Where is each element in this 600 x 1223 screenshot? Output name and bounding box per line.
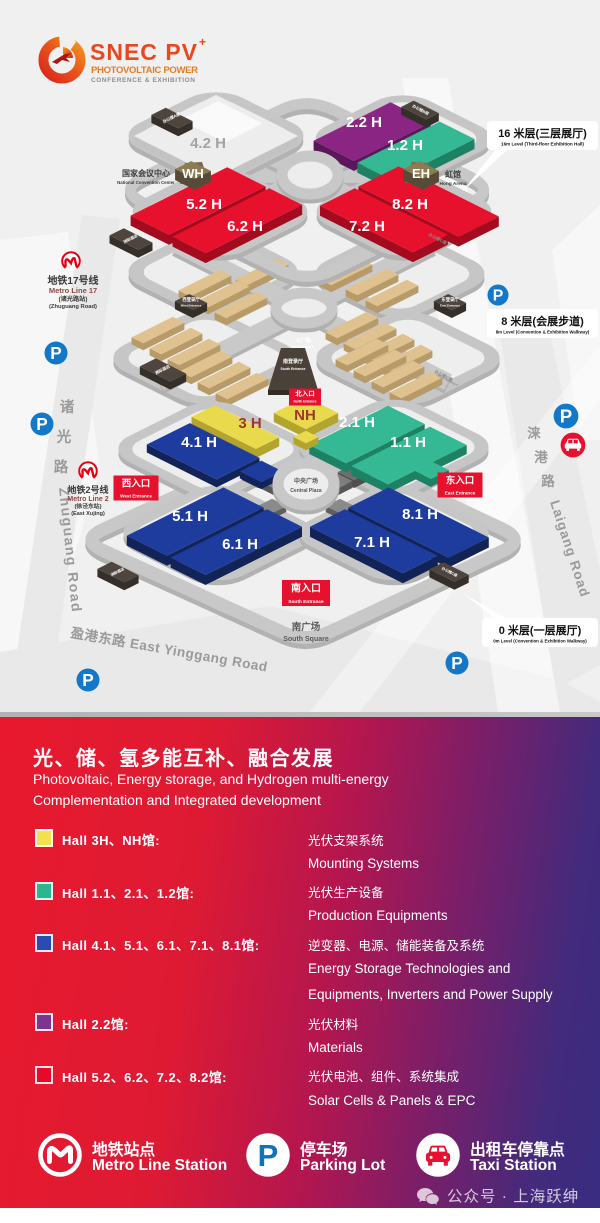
- svg-text:WH: WH: [182, 166, 204, 181]
- svg-text:4.1 H: 4.1 H: [181, 434, 217, 451]
- svg-text:西登录厅: 西登录厅: [182, 296, 200, 303]
- svg-text:4.2 H: 4.2 H: [190, 135, 226, 152]
- svg-text:南广场: 南广场: [292, 621, 321, 633]
- svg-text:虹馆: 虹馆: [445, 169, 461, 179]
- svg-text:West Entrance: West Entrance: [181, 304, 202, 308]
- svg-text:P: P: [36, 414, 47, 434]
- svg-text:1.1 H: 1.1 H: [390, 434, 426, 451]
- svg-text:CONFERENCE & EXHIBITION: CONFERENCE & EXHIBITION: [91, 77, 195, 84]
- svg-text:1.2 H: 1.2 H: [387, 137, 423, 154]
- svg-text:北入口: 北入口: [295, 389, 315, 398]
- svg-text:West Entrance: West Entrance: [120, 494, 152, 499]
- svg-text:North Entrance: North Entrance: [293, 400, 316, 404]
- svg-text:South Entrance: South Entrance: [280, 367, 305, 371]
- svg-text:P: P: [258, 1138, 279, 1173]
- svg-text:Central Plaza: Central Plaza: [290, 488, 322, 494]
- svg-text:P: P: [82, 670, 93, 690]
- svg-text:7.1 H: 7.1 H: [354, 534, 390, 551]
- svg-text:8.1 H: 8.1 H: [402, 506, 438, 523]
- svg-text:(Zhuguang Road): (Zhuguang Road): [49, 304, 97, 310]
- svg-text:SNEC PV: SNEC PV: [90, 39, 198, 65]
- svg-text:8 米层(会展步道): 8 米层(会展步道): [501, 314, 584, 328]
- svg-text:P: P: [50, 343, 61, 363]
- svg-text:5.1 H: 5.1 H: [172, 508, 208, 525]
- svg-text:P: P: [451, 653, 462, 673]
- svg-text:涞: 涞: [527, 426, 541, 441]
- svg-text:Hong Arena: Hong Arena: [439, 181, 466, 187]
- svg-text:西入口: 西入口: [122, 479, 151, 490]
- svg-text:路: 路: [54, 458, 69, 476]
- svg-text:0m Level (Convention & Exhibit: 0m Level (Convention & Exhibition Walkwa…: [493, 639, 587, 644]
- svg-text:南登录厅: 南登录厅: [283, 358, 303, 365]
- svg-text:公众号 · 上海跃绅: 公众号 · 上海跃绅: [447, 1188, 579, 1206]
- svg-text:8.2 H: 8.2 H: [392, 196, 428, 213]
- svg-text:8m Level (Convention & Exhibit: 8m Level (Convention & Exhibition Walkwa…: [496, 330, 590, 335]
- svg-text:南入口: 南入口: [291, 582, 321, 595]
- svg-text:北广场: 北广场: [295, 337, 310, 344]
- svg-text:16m Level (Third-floor Exhibit: 16m Level (Third-floor Exhibition Hall): [501, 142, 584, 147]
- svg-text:路: 路: [541, 473, 555, 489]
- svg-text:16 米层(三层展厅): 16 米层(三层展厅): [498, 126, 587, 140]
- svg-text:诸: 诸: [60, 399, 75, 416]
- svg-text:6.2 H: 6.2 H: [227, 218, 263, 235]
- svg-text:South Entrance: South Entrance: [288, 599, 324, 605]
- svg-text:P: P: [493, 288, 504, 305]
- svg-text:地铁2号线: 地铁2号线: [67, 484, 108, 495]
- svg-text:Metro Line 2: Metro Line 2: [67, 496, 108, 503]
- svg-text:7.2 H: 7.2 H: [349, 218, 385, 235]
- svg-text:2.2 H: 2.2 H: [346, 114, 382, 131]
- svg-text:East Entrance: East Entrance: [440, 304, 460, 308]
- svg-text:(徐泾东站): (徐泾东站): [74, 502, 101, 510]
- svg-text:东入口: 东入口: [446, 475, 475, 487]
- svg-text:5.2 H: 5.2 H: [186, 196, 222, 213]
- svg-text:2.1 H: 2.1 H: [339, 414, 375, 431]
- svg-text:Metro Line 17: Metro Line 17: [49, 286, 97, 295]
- svg-text:6.1 H: 6.1 H: [222, 536, 258, 553]
- svg-text:NH: NH: [294, 407, 316, 424]
- svg-text:+: +: [199, 35, 206, 49]
- svg-text:0 米层(一层展厅): 0 米层(一层展厅): [499, 623, 582, 637]
- svg-text:国家会议中心: 国家会议中心: [122, 168, 170, 178]
- svg-text:中央广场: 中央广场: [294, 477, 318, 485]
- svg-text:3 H: 3 H: [238, 415, 261, 432]
- svg-text:(East Xujing): (East Xujing): [71, 511, 105, 517]
- svg-text:(诸光路站): (诸光路站): [59, 295, 88, 303]
- svg-text:National Convention Center: National Convention Center: [117, 180, 175, 185]
- svg-text:光: 光: [56, 428, 72, 446]
- svg-text:港: 港: [534, 449, 548, 465]
- svg-text:东登录厅: 东登录厅: [441, 296, 459, 303]
- svg-text:East Entrance: East Entrance: [445, 491, 476, 496]
- svg-text:PHOTOVOLTAIC POWER: PHOTOVOLTAIC POWER: [91, 65, 198, 76]
- svg-text:P: P: [560, 405, 572, 426]
- svg-text:EH: EH: [412, 166, 430, 181]
- svg-text:South Square: South Square: [283, 636, 329, 643]
